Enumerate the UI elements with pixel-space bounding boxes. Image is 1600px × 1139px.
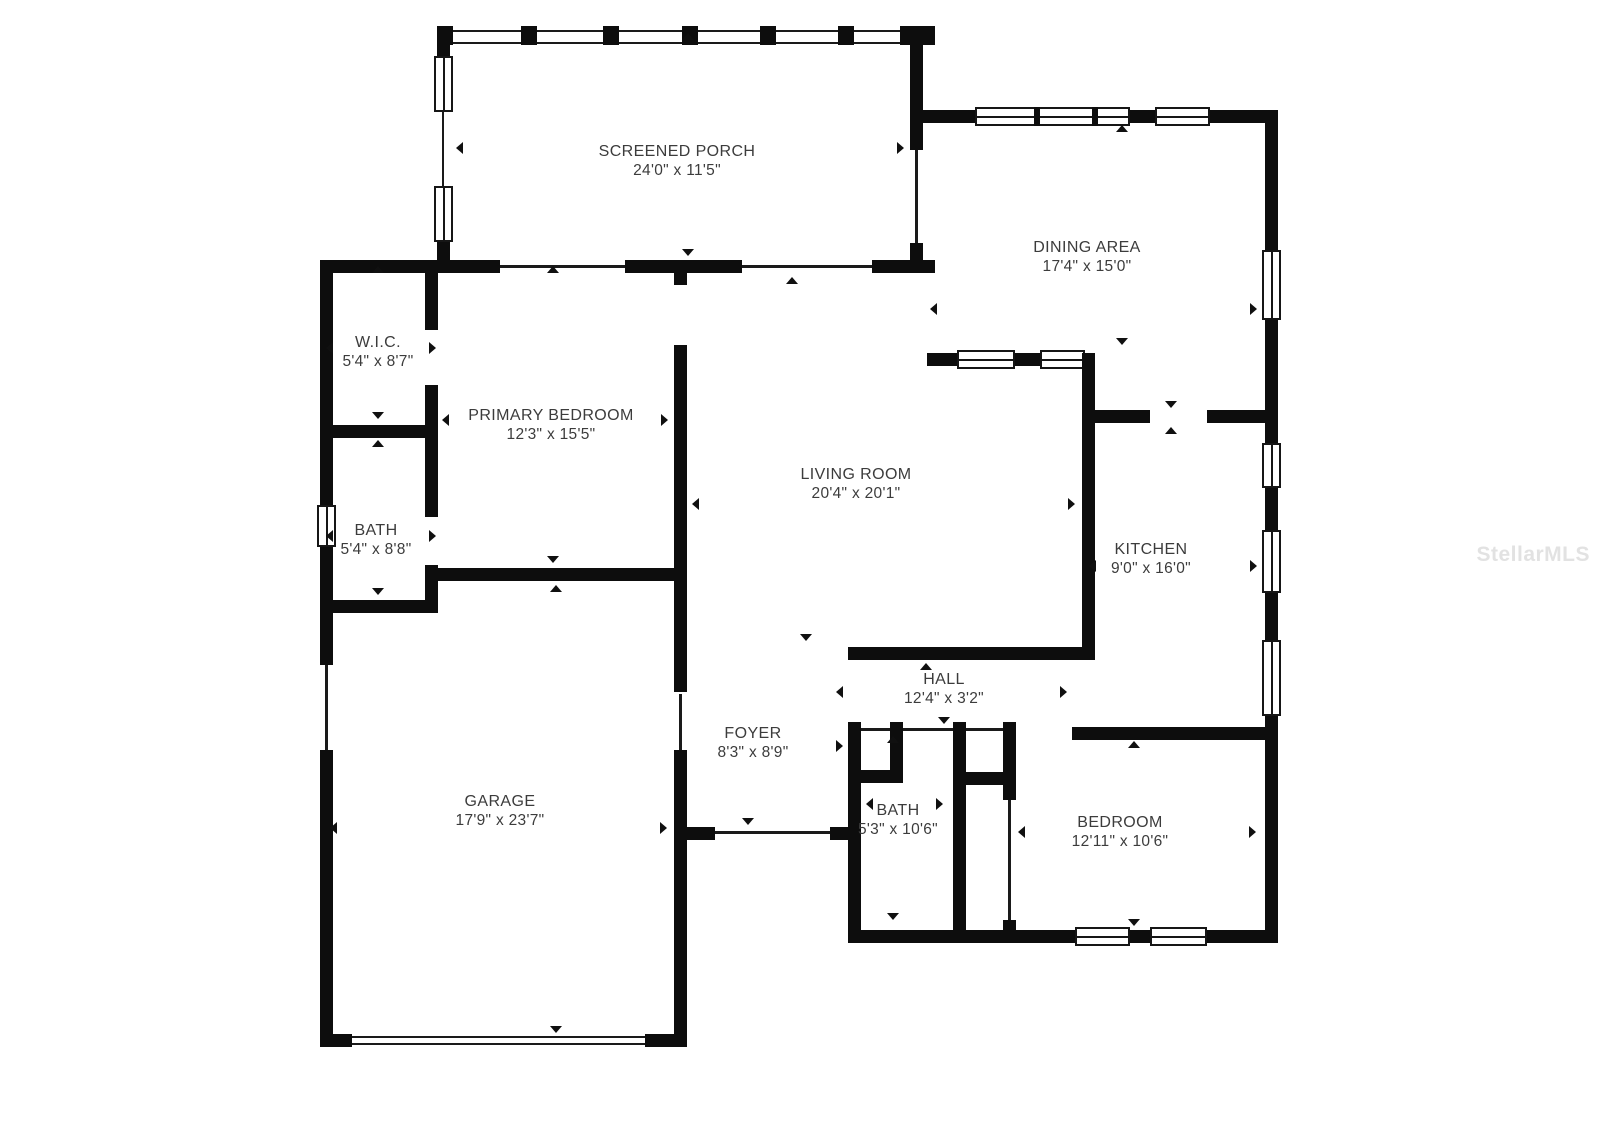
wall — [1265, 320, 1278, 443]
door-marker — [1116, 338, 1128, 345]
door-marker — [1089, 560, 1096, 572]
wall — [1207, 410, 1265, 423]
room-dims: 12'4" x 3'2" — [904, 689, 984, 708]
room-name: BEDROOM — [1072, 813, 1169, 832]
room-dims: 12'11" x 10'6" — [1072, 832, 1169, 851]
room-name: BATH — [858, 801, 938, 820]
sliding-door — [742, 265, 872, 268]
wall — [320, 260, 333, 505]
room-dims: 9'0" x 16'0" — [1111, 559, 1191, 578]
room-label-bath-lower: BATH 5'3" x 10'6" — [858, 801, 938, 839]
wall — [674, 260, 687, 285]
room-name: KITCHEN — [1111, 540, 1191, 559]
room-dims: 20'4" x 20'1" — [800, 484, 911, 503]
door-marker — [1165, 427, 1177, 434]
wall — [1130, 110, 1155, 123]
door-marker — [836, 686, 843, 698]
wall — [674, 750, 687, 1047]
door-marker — [372, 412, 384, 419]
porch-post — [838, 26, 854, 45]
window — [1262, 530, 1281, 593]
room-label-bedroom: BEDROOM 12'11" x 10'6" — [1072, 813, 1169, 851]
wall — [910, 243, 923, 273]
sliding-door — [500, 265, 625, 268]
wall — [1265, 716, 1278, 943]
wall — [1072, 727, 1265, 740]
wall — [320, 425, 438, 438]
door-marker — [456, 142, 463, 154]
wall — [910, 110, 975, 123]
door-marker — [429, 530, 436, 542]
wall — [1082, 353, 1095, 660]
room-dims: 5'4" x 8'8" — [340, 540, 411, 559]
room-name: W.I.C. — [342, 333, 413, 352]
room-label-primary-bedroom: PRIMARY BEDROOM 12'3" x 15'5" — [468, 406, 633, 444]
room-label-hall: HALL 12'4" x 3'2" — [904, 670, 984, 708]
wall — [425, 385, 438, 517]
room-dims: 24'0" x 11'5" — [599, 161, 756, 180]
door-opening — [915, 150, 918, 243]
door-opening — [325, 665, 328, 750]
door-marker — [1060, 686, 1067, 698]
door-marker — [1249, 826, 1256, 838]
room-label-bath-upper: BATH 5'4" x 8'8" — [340, 521, 411, 559]
wall — [1207, 930, 1278, 943]
room-dims: 5'4" x 8'7" — [342, 352, 413, 371]
door-marker — [372, 266, 384, 273]
wall — [320, 260, 500, 273]
room-label-foyer: FOYER 8'3" x 8'9" — [717, 724, 788, 762]
screen-door — [442, 112, 444, 186]
wall — [1130, 930, 1150, 943]
window-mullion — [1092, 107, 1098, 126]
wall — [320, 750, 333, 1047]
room-name: GARAGE — [456, 792, 545, 811]
door-marker — [547, 266, 559, 273]
room-dims: 17'9" x 23'7" — [456, 811, 545, 830]
room-label-living-room: LIVING ROOM 20'4" x 20'1" — [800, 465, 911, 503]
door-marker — [1128, 919, 1140, 926]
wall — [927, 353, 957, 366]
wall — [320, 600, 438, 613]
room-dims: 8'3" x 8'9" — [717, 743, 788, 762]
door-marker — [692, 498, 699, 510]
garage-door — [352, 1036, 645, 1038]
door-marker — [786, 277, 798, 284]
room-label-dining-area: DINING AREA 17'4" x 15'0" — [1033, 238, 1141, 276]
door-marker — [547, 556, 559, 563]
door-marker — [372, 588, 384, 595]
door-marker — [429, 342, 436, 354]
wall — [1015, 353, 1040, 366]
door-marker — [1250, 303, 1257, 315]
room-dims: 5'3" x 10'6" — [858, 820, 938, 839]
window — [957, 350, 1015, 369]
window — [1155, 107, 1210, 126]
door-marker — [742, 818, 754, 825]
wall — [645, 1034, 687, 1047]
wall — [848, 930, 1075, 943]
cased-opening — [848, 728, 1010, 731]
wall — [437, 30, 450, 56]
room-label-screened-porch: SCREENED PORCH 24'0" x 11'5" — [599, 142, 756, 180]
room-label-garage: GARAGE 17'9" x 23'7" — [456, 792, 545, 830]
porch-post — [603, 26, 619, 45]
wall — [910, 26, 923, 150]
room-name: PRIMARY BEDROOM — [468, 406, 633, 425]
screen-window — [434, 186, 453, 242]
wall — [953, 728, 966, 943]
door-marker — [326, 342, 333, 354]
door-marker — [897, 142, 904, 154]
door-marker — [550, 585, 562, 592]
door-marker — [1128, 741, 1140, 748]
door-marker — [682, 249, 694, 256]
wall — [848, 647, 1095, 660]
room-name: LIVING ROOM — [800, 465, 911, 484]
wall — [1265, 593, 1278, 640]
entry-door — [715, 831, 830, 834]
door-marker — [1165, 401, 1177, 408]
window — [975, 107, 1130, 126]
room-name: SCREENED PORCH — [599, 142, 756, 161]
room-name: HALL — [904, 670, 984, 689]
door-marker — [887, 913, 899, 920]
window — [1075, 927, 1130, 946]
window — [1150, 927, 1207, 946]
door-opening — [679, 694, 682, 750]
wall — [953, 772, 1016, 785]
door-marker — [1116, 125, 1128, 132]
wall — [1265, 488, 1278, 530]
room-dims: 12'3" x 15'5" — [468, 425, 633, 444]
window — [1262, 250, 1281, 320]
wall — [872, 260, 935, 273]
wall — [674, 345, 687, 692]
door-marker — [930, 303, 937, 315]
door-marker — [1068, 498, 1075, 510]
door-marker — [887, 736, 899, 743]
room-label-wic: W.I.C. 5'4" x 8'7" — [342, 333, 413, 371]
door-marker — [442, 414, 449, 426]
door-marker — [1018, 826, 1025, 838]
closet-door — [1008, 800, 1011, 920]
floor-plan-canvas: SCREENED PORCH 24'0" x 11'5" DINING AREA… — [0, 0, 1600, 1139]
porch-post — [521, 26, 537, 45]
room-name: FOYER — [717, 724, 788, 743]
door-marker — [661, 414, 668, 426]
screen-window — [434, 56, 453, 112]
room-name: DINING AREA — [1033, 238, 1141, 257]
garage-door — [352, 1043, 645, 1045]
door-marker — [372, 440, 384, 447]
wall — [320, 1034, 352, 1047]
door-marker — [938, 717, 950, 724]
room-label-kitchen: KITCHEN 9'0" x 16'0" — [1111, 540, 1191, 578]
door-marker — [326, 530, 333, 542]
door-marker — [1250, 560, 1257, 572]
wall — [437, 242, 450, 273]
room-dims: 17'4" x 15'0" — [1033, 257, 1141, 276]
window — [1262, 640, 1281, 716]
window — [1262, 443, 1281, 488]
window-mullion — [1034, 107, 1040, 126]
wall — [1095, 410, 1150, 423]
door-marker — [330, 822, 337, 834]
door-marker — [836, 740, 843, 752]
wall — [1265, 110, 1278, 250]
stellar-mls-watermark: StellarMLS — [1476, 543, 1590, 567]
door-marker — [682, 33, 694, 40]
door-marker — [550, 1026, 562, 1033]
wall — [1003, 728, 1016, 800]
door-marker — [800, 634, 812, 641]
wall — [848, 770, 903, 783]
door-marker — [660, 822, 667, 834]
porch-post — [760, 26, 776, 45]
wall — [830, 827, 848, 840]
wall — [425, 568, 687, 581]
wall — [687, 827, 715, 840]
window — [1040, 350, 1085, 369]
door-marker — [920, 663, 932, 670]
room-name: BATH — [340, 521, 411, 540]
